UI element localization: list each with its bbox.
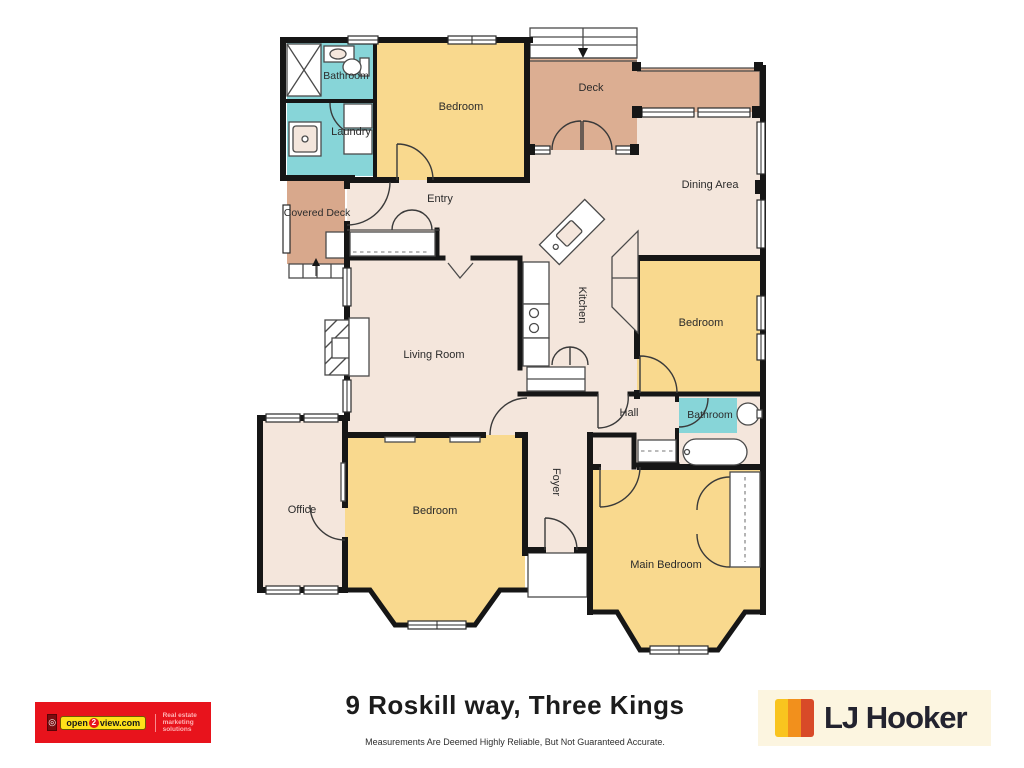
hall-closet bbox=[638, 440, 676, 462]
open2view-logo: open 2 view.com bbox=[60, 716, 146, 730]
bathtub bbox=[683, 439, 747, 465]
open2view-tagline: Real estate marketing solutions bbox=[163, 712, 211, 733]
office-shelf bbox=[341, 463, 345, 501]
room-label-bedroom-right: Bedroom bbox=[679, 317, 724, 329]
window bbox=[757, 296, 765, 330]
ljhooker-stripes-icon bbox=[775, 699, 814, 737]
window bbox=[698, 108, 750, 117]
window bbox=[408, 621, 466, 629]
room-label-bathroom-right: Bathroom bbox=[687, 409, 733, 421]
room-label-living-room: Living Room bbox=[403, 349, 464, 361]
stove bbox=[523, 304, 549, 338]
window bbox=[757, 334, 765, 360]
main-bedroom-wardrobe bbox=[730, 472, 760, 567]
ljhooker-logo: LJ Hooker bbox=[758, 690, 991, 746]
window bbox=[448, 36, 496, 44]
window bbox=[343, 268, 351, 306]
room-label-kitchen: Kitchen bbox=[576, 287, 588, 324]
laundry-tub bbox=[289, 122, 321, 156]
page: Bathroom Laundry Bedroom Deck Dining Are… bbox=[0, 0, 1024, 768]
deck-stairs bbox=[530, 28, 637, 58]
property-address: 9 Roskill way, Three Kings bbox=[270, 690, 760, 721]
window bbox=[304, 414, 338, 422]
window bbox=[757, 122, 765, 174]
window bbox=[757, 200, 765, 248]
divider bbox=[155, 714, 156, 732]
room-label-hall: Hall bbox=[620, 407, 639, 419]
window bbox=[304, 586, 338, 594]
room-label-dining-area: Dining Area bbox=[682, 179, 740, 191]
open2view-brand-pre: open bbox=[66, 718, 88, 728]
open2view-banner: ◎ open 2 view.com Real estate marketing … bbox=[35, 702, 211, 743]
open2view-brand-num: 2 bbox=[89, 718, 99, 728]
window bbox=[266, 586, 300, 594]
fireplace bbox=[325, 318, 369, 376]
room-label-bathroom-top: Bathroom bbox=[323, 70, 369, 82]
window bbox=[348, 36, 378, 44]
room-label-laundry: Laundry bbox=[331, 126, 371, 138]
room-label-bedroom-top: Bedroom bbox=[439, 101, 484, 113]
window bbox=[642, 108, 694, 117]
room-label-covered-deck: Covered Deck bbox=[284, 207, 351, 219]
room-label-deck: Deck bbox=[578, 82, 604, 94]
ljhooker-name: LJ Hooker bbox=[824, 700, 967, 736]
window bbox=[650, 646, 708, 654]
room-label-bedroom-left: Bedroom bbox=[413, 505, 458, 517]
room-label-foyer: Foyer bbox=[550, 468, 562, 496]
camera-icon: ◎ bbox=[47, 714, 57, 731]
window bbox=[266, 414, 300, 422]
front-porch bbox=[528, 553, 587, 597]
room-label-main-bedroom: Main Bedroom bbox=[630, 559, 702, 571]
entry-closet bbox=[350, 232, 435, 256]
open2view-brand-post: view.com bbox=[100, 718, 140, 728]
floor-plan: Bathroom Laundry Bedroom Deck Dining Are… bbox=[0, 0, 1024, 688]
room-label-office: Office bbox=[288, 504, 317, 516]
window bbox=[343, 380, 351, 412]
disclaimer-text: Measurements Are Deemed Highly Reliable,… bbox=[270, 737, 760, 747]
room-label-entry: Entry bbox=[427, 193, 453, 205]
